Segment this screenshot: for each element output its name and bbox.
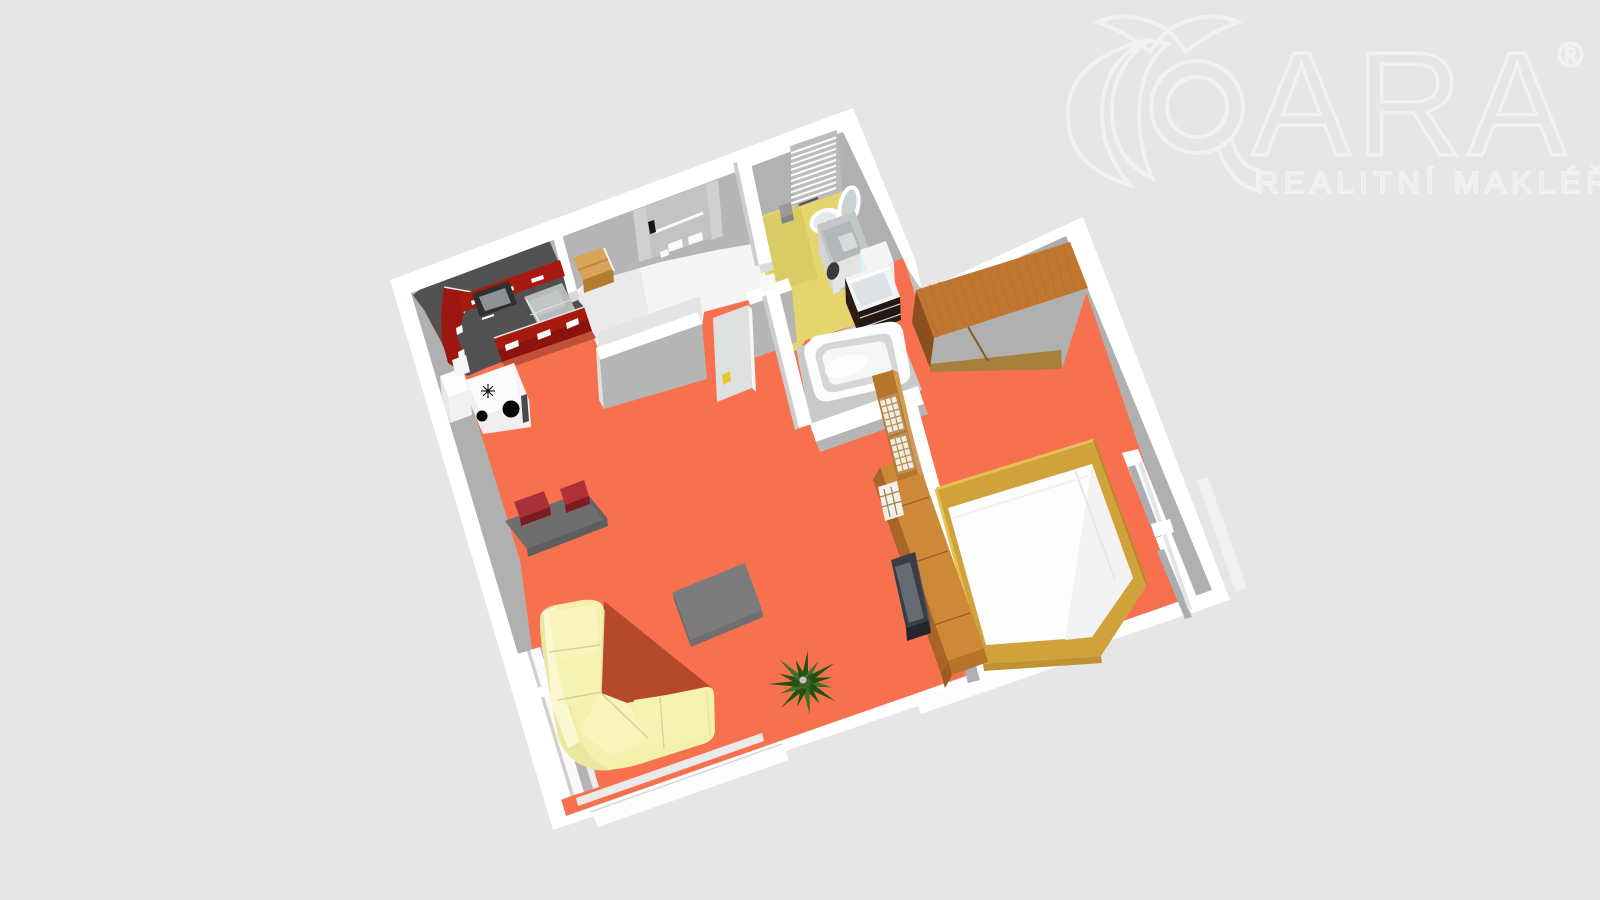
svg-text:ARA: ARA [1252,22,1571,187]
svg-text:®: ® [1558,36,1583,74]
svg-text:REALITNÍ MAKLÉŘI: REALITNÍ MAKLÉŘI [1256,165,1600,200]
